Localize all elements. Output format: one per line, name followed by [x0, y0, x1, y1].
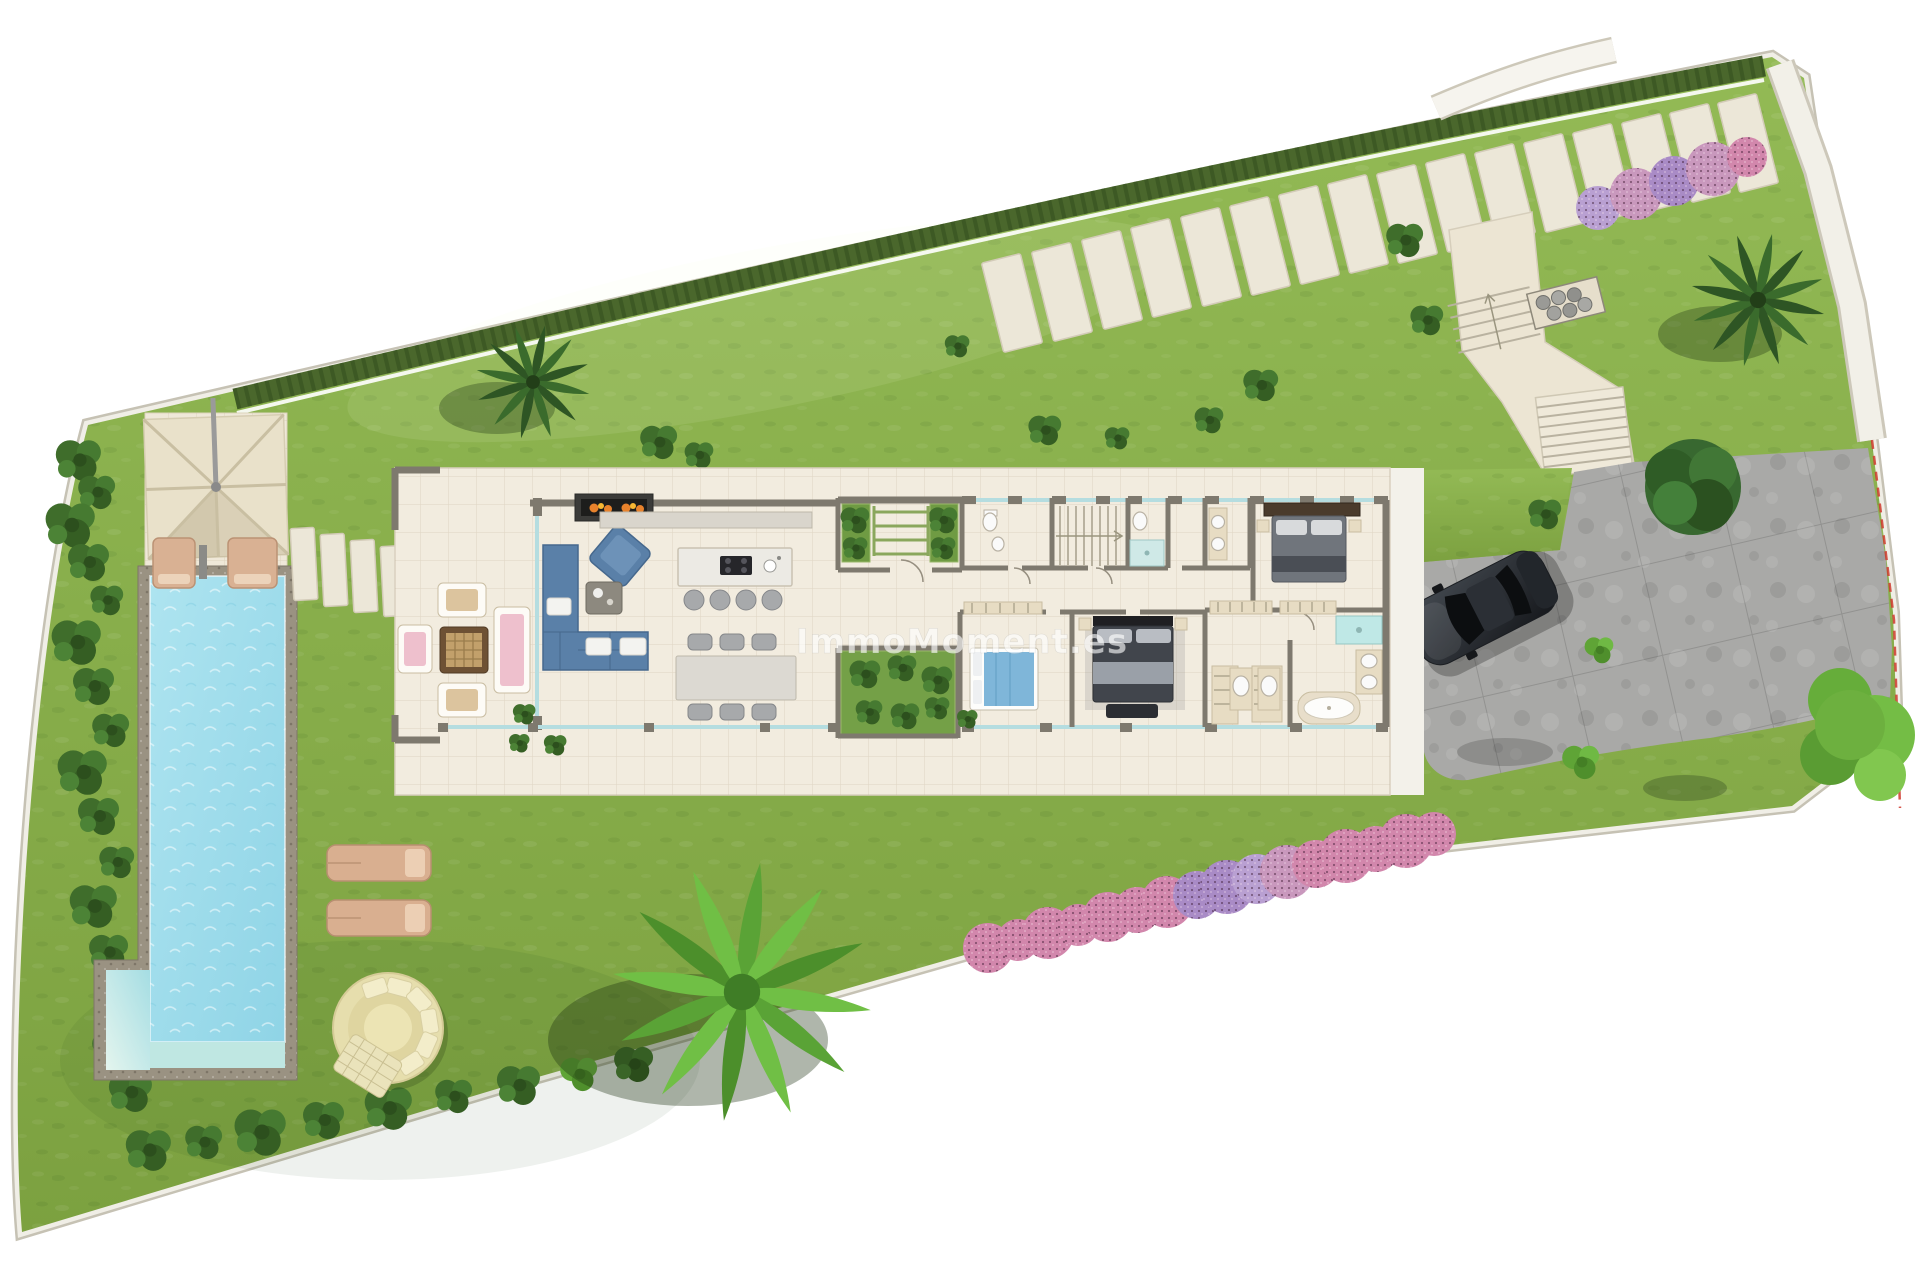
headboard-wardrobe: [1264, 503, 1360, 516]
outdoor-stairs-lower: [1535, 387, 1632, 477]
bathroom-3: [1209, 508, 1227, 560]
pillow: [1311, 520, 1342, 535]
parasol-pole: [213, 398, 216, 487]
parasol: [143, 396, 288, 560]
round-tree: [1645, 439, 1741, 535]
courtyard-garden: [841, 651, 955, 735]
toilet: [1133, 512, 1147, 530]
nightstand: [1175, 618, 1187, 630]
pool-shallow-strip: [150, 1042, 285, 1068]
wardrobe: [1210, 601, 1272, 614]
plant: [957, 710, 978, 729]
driveway-shadow: [1457, 738, 1553, 766]
sun-lounger-terrace-1: [153, 538, 195, 588]
sink: [992, 537, 1004, 551]
sofa-pillow: [586, 638, 611, 655]
sun-lounger-lawn-2: [327, 900, 431, 936]
toilet: [1233, 676, 1249, 696]
sun-lounger-lawn-1: [327, 845, 431, 881]
pool-steps: [106, 970, 150, 1070]
lounger-frame: [199, 545, 207, 579]
bedroom-1: [1257, 503, 1361, 582]
house-side-path: [1388, 468, 1424, 795]
pillow: [973, 680, 982, 704]
bidet: [1261, 676, 1277, 696]
pillow: [1276, 520, 1307, 535]
bathtub: [1298, 692, 1360, 724]
nightstand: [1349, 520, 1361, 532]
bush: [1528, 500, 1561, 530]
bench: [1106, 704, 1158, 718]
dining-table: [676, 656, 796, 700]
sink: [1361, 654, 1377, 668]
kitchen-counter: [600, 512, 812, 528]
sink: [1212, 538, 1225, 551]
bed-throw: [1093, 662, 1173, 684]
kitchen-sink: [764, 560, 776, 572]
watermark-text: ImmoMoment.es: [796, 622, 1128, 662]
coffee-table: [586, 582, 622, 614]
pillow: [1136, 629, 1171, 643]
bed-throw: [1272, 556, 1346, 572]
cooktop: [720, 556, 752, 575]
sink: [1212, 516, 1225, 529]
sofa-pillow: [620, 638, 646, 655]
sink: [1361, 675, 1377, 689]
nightstand: [1257, 520, 1269, 532]
site-plan-svg: ImmoMoment.es: [0, 0, 1920, 1280]
bush-shadow: [1643, 775, 1727, 801]
site-plan-page: ImmoMoment.es: [0, 0, 1920, 1280]
sofa-pillow: [547, 598, 571, 615]
toilet: [983, 513, 997, 531]
wicker-table: [440, 627, 488, 673]
sun-lounger-terrace-2: [228, 538, 277, 588]
wardrobe: [964, 602, 1042, 614]
kitchen-island: [678, 548, 792, 586]
